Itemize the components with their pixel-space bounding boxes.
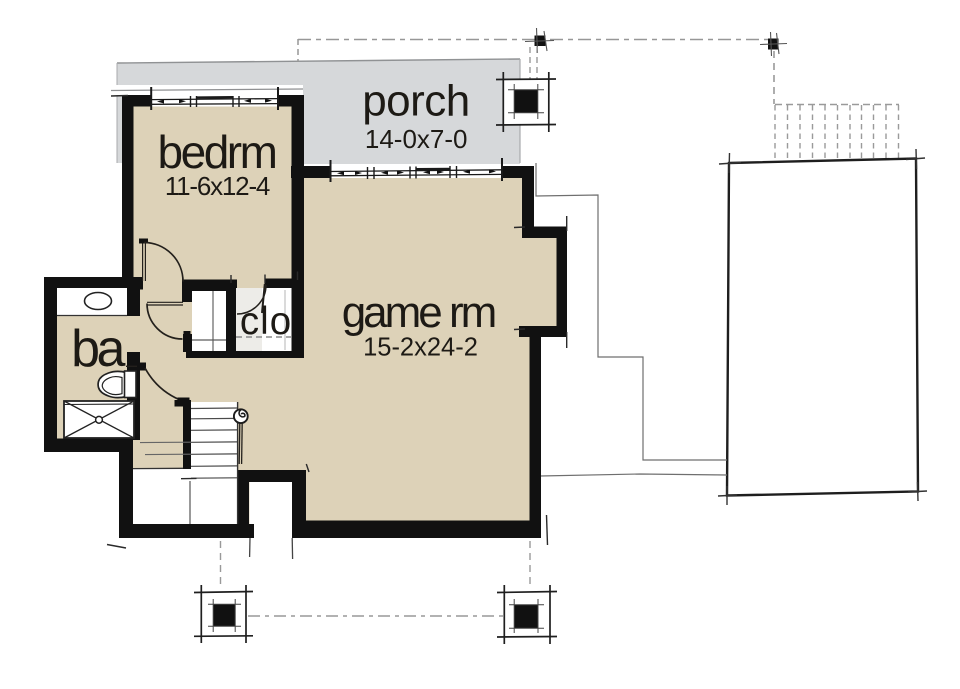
svg-text:15-2x24-2: 15-2x24-2 — [363, 334, 478, 362]
svg-text:porch: porch — [362, 77, 470, 126]
svg-text:14-0x7-0: 14-0x7-0 — [365, 124, 468, 154]
svg-text:ba: ba — [71, 320, 125, 378]
svg-text:11-6x12-4: 11-6x12-4 — [165, 171, 270, 201]
svg-text:clo: clo — [240, 300, 292, 343]
svg-text:game rm: game rm — [342, 288, 495, 337]
